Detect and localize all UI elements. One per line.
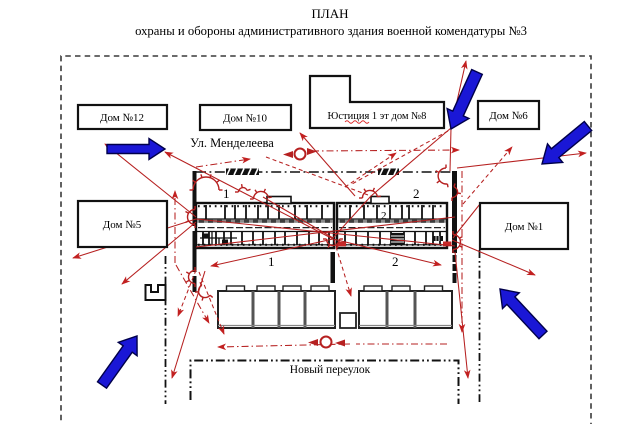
svg-text:1: 1 — [223, 186, 230, 201]
svg-text:Новый переулок: Новый переулок — [290, 364, 371, 376]
svg-text:2: 2 — [413, 186, 420, 201]
svg-text:Ул. Менделеева: Ул. Менделеева — [190, 136, 274, 150]
svg-text:Дом №10: Дом №10 — [223, 113, 268, 125]
svg-text:охраны и обороны административ: охраны и обороны административного здани… — [135, 24, 527, 38]
svg-text:ПЛАН: ПЛАН — [312, 6, 349, 21]
svg-text:Дом №6: Дом №6 — [489, 110, 528, 122]
svg-text:2: 2 — [381, 210, 387, 222]
svg-text:Юстиция 1 эт дом №8: Юстиция 1 эт дом №8 — [328, 111, 427, 122]
svg-text:Дом №5: Дом №5 — [103, 219, 142, 231]
svg-text:2: 2 — [392, 254, 399, 269]
svg-text:Дом №12: Дом №12 — [100, 112, 144, 124]
svg-text:Дом №1: Дом №1 — [505, 221, 544, 233]
svg-text:1: 1 — [268, 254, 275, 269]
